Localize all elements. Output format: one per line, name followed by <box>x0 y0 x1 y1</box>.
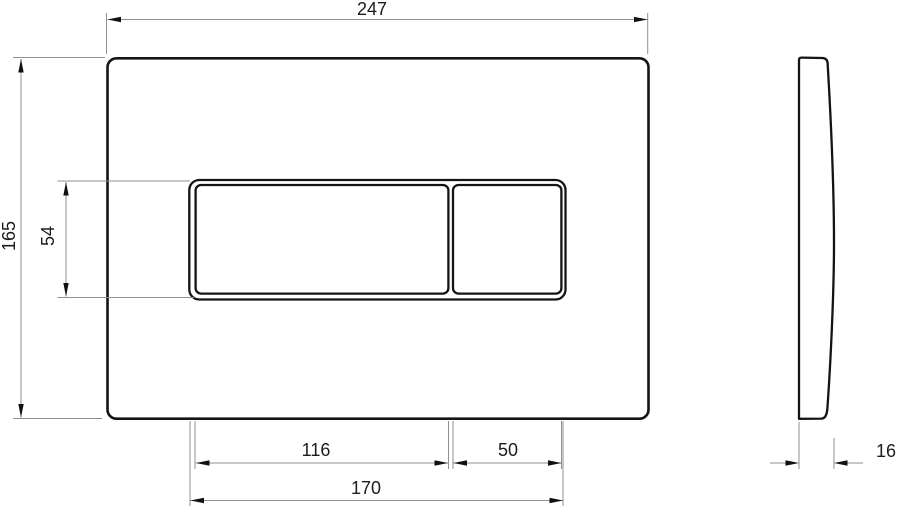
side-view: 16 <box>770 58 896 469</box>
dim-label-plate-width: 247 <box>357 0 387 19</box>
dim-label-plate-height: 165 <box>0 221 19 251</box>
dim-label-plate-thickness: 16 <box>876 441 896 461</box>
dim-small-button-width: 50 <box>453 421 562 469</box>
arrowhead-left <box>196 460 210 465</box>
arrowhead-right <box>634 17 648 22</box>
flush-plate-dimension-drawing: rent.sk 247 <box>0 0 900 509</box>
dim-label-small-button-width: 50 <box>498 440 518 460</box>
dim-label-large-button-width: 116 <box>302 440 331 460</box>
small-flush-button <box>453 185 561 294</box>
arrowhead-down <box>63 283 68 297</box>
dim-plate-width: 247 <box>107 0 648 54</box>
dim-large-button-width: 116 <box>195 421 449 469</box>
arrowhead-up <box>63 182 68 196</box>
technical-drawing-canvas: rent.sk 247 <box>0 0 900 509</box>
arrowhead-left <box>454 460 468 465</box>
arrowhead-right <box>550 498 564 503</box>
arrowhead-right <box>786 460 800 465</box>
dim-label-recess-width: 170 <box>351 478 381 498</box>
arrowhead-up <box>18 59 23 73</box>
arrowhead-down <box>18 404 23 418</box>
dim-plate-thickness: 16 <box>770 422 896 469</box>
large-flush-button <box>196 185 449 294</box>
front-view: rent.sk 247 <box>0 0 649 506</box>
arrowhead-right <box>548 460 562 465</box>
arrowhead-right <box>435 460 449 465</box>
arrowhead-left <box>834 460 848 465</box>
dim-label-button-height: 54 <box>38 226 58 246</box>
arrowhead-left <box>191 498 205 503</box>
arrowhead-left <box>108 17 122 22</box>
side-profile-outline <box>799 58 834 419</box>
